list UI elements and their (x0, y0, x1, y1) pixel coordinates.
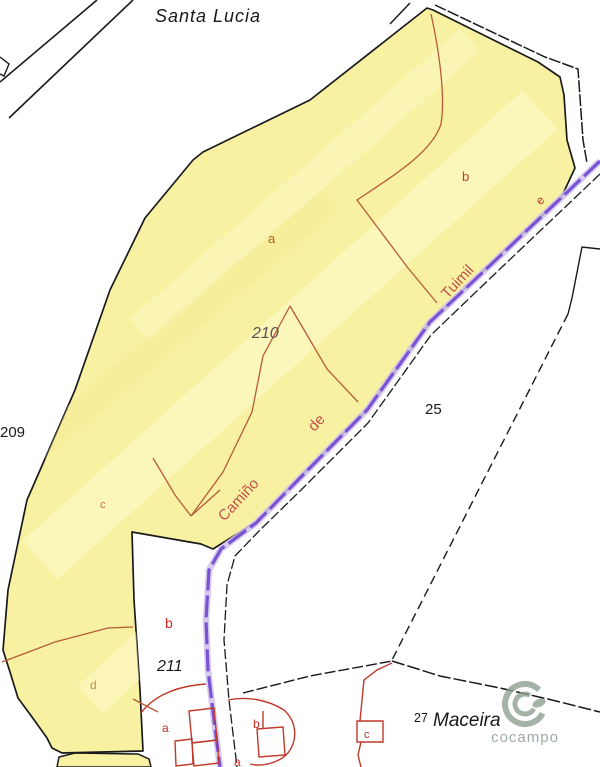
subparcel-c-label: c (100, 499, 106, 511)
label-parcel-25: 25 (425, 401, 442, 418)
building-a2-label: a (234, 755, 241, 767)
label-parcel-210: 210 (251, 325, 279, 342)
label-parcel-209: 209 (0, 424, 25, 441)
subparcel-d-label: d (90, 678, 97, 692)
parcel-211-b-label: b (165, 615, 173, 631)
map-canvas: Santa Lucia 209 210 25 211 27 Maceira a … (0, 0, 600, 767)
building-b-label: b (253, 717, 260, 731)
subparcel-b-label: b (462, 169, 469, 184)
maceira-c-label: c (364, 729, 370, 741)
building-a-label: a (162, 721, 169, 735)
label-santa-lucia: Santa Lucia (155, 6, 261, 26)
label-maceira: Maceira (433, 710, 501, 731)
bottom-yellow-parcel (57, 753, 151, 767)
label-parcel-211: 211 (156, 658, 183, 675)
label-parcel-27: 27 (414, 711, 428, 725)
cadastral-map: Santa Lucia 209 210 25 211 27 Maceira a … (0, 0, 600, 767)
subparcel-a-label: a (268, 231, 276, 246)
cocampo-watermark-text: cocampo (491, 729, 559, 746)
